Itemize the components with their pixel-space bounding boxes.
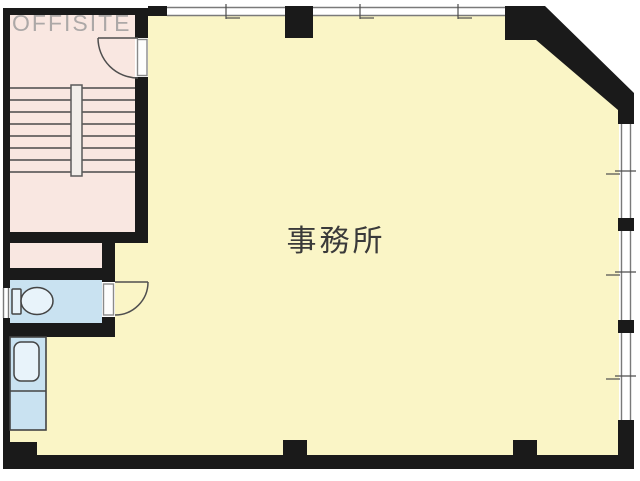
stair-center-rail [71,85,82,176]
wall-bottom [10,455,634,469]
toilet-door-panel [104,284,114,315]
toilet-tank [12,289,21,314]
wall-right-seg1 [618,218,634,231]
office-room-label: 事務所 [287,224,386,259]
wall-left [3,8,10,442]
wall-landing-toilet-sep [10,268,115,280]
landing-room-floor [10,243,102,268]
wall-stairwell-right [135,77,148,243]
column-bottom-1 [283,440,307,456]
kitchenette-counter [10,337,46,430]
column-bottom-2 [513,440,537,456]
floorplan-image: 事務所 OFFISITE [0,0,640,481]
watermark-text: OFFISITE [12,10,132,36]
stairwell-door-panel [138,40,148,76]
wall-right-bottom [618,420,634,469]
toilet-bowl [21,288,53,315]
column-top-1 [285,6,313,38]
window-top-b [313,7,505,16]
wall-top-office-stub [148,6,167,16]
wall-stairwell-right-top [135,8,148,38]
toilet-fixture [12,288,53,315]
wall-right-seg2 [618,320,634,333]
wall-toilet-bottom [10,323,115,337]
wall-landing-bottom [10,232,148,243]
sink-basin [14,342,39,381]
